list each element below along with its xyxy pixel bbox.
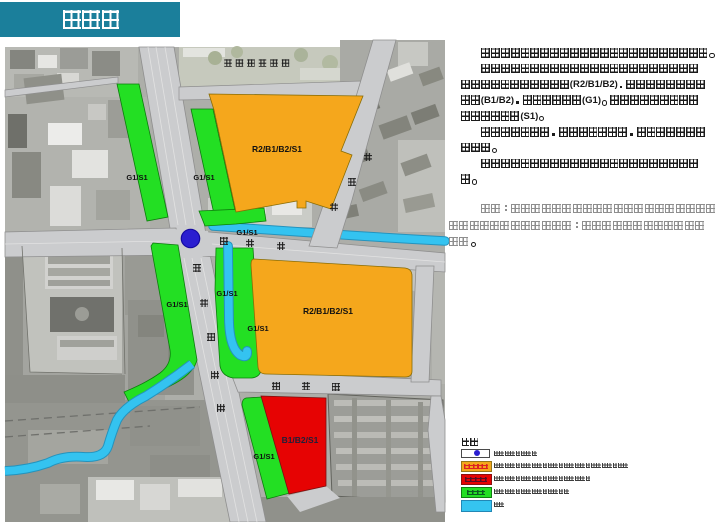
svg-text:B1/B2/S1: B1/B2/S1 bbox=[282, 435, 319, 445]
svg-text:R2/B1/B2/S1: R2/B1/B2/S1 bbox=[252, 144, 302, 154]
svg-text:R2/B1/B2/S1: R2/B1/B2/S1 bbox=[303, 306, 353, 316]
svg-text:G1/S1: G1/S1 bbox=[193, 173, 214, 182]
svg-text:G1/S1: G1/S1 bbox=[253, 452, 274, 461]
svg-text:G1/S1: G1/S1 bbox=[247, 324, 268, 333]
svg-text:G1/S1: G1/S1 bbox=[216, 289, 237, 298]
svg-text:G1/S1: G1/S1 bbox=[166, 300, 187, 309]
svg-text:G1/S1: G1/S1 bbox=[236, 228, 257, 237]
svg-text:G1/S1: G1/S1 bbox=[126, 173, 147, 182]
